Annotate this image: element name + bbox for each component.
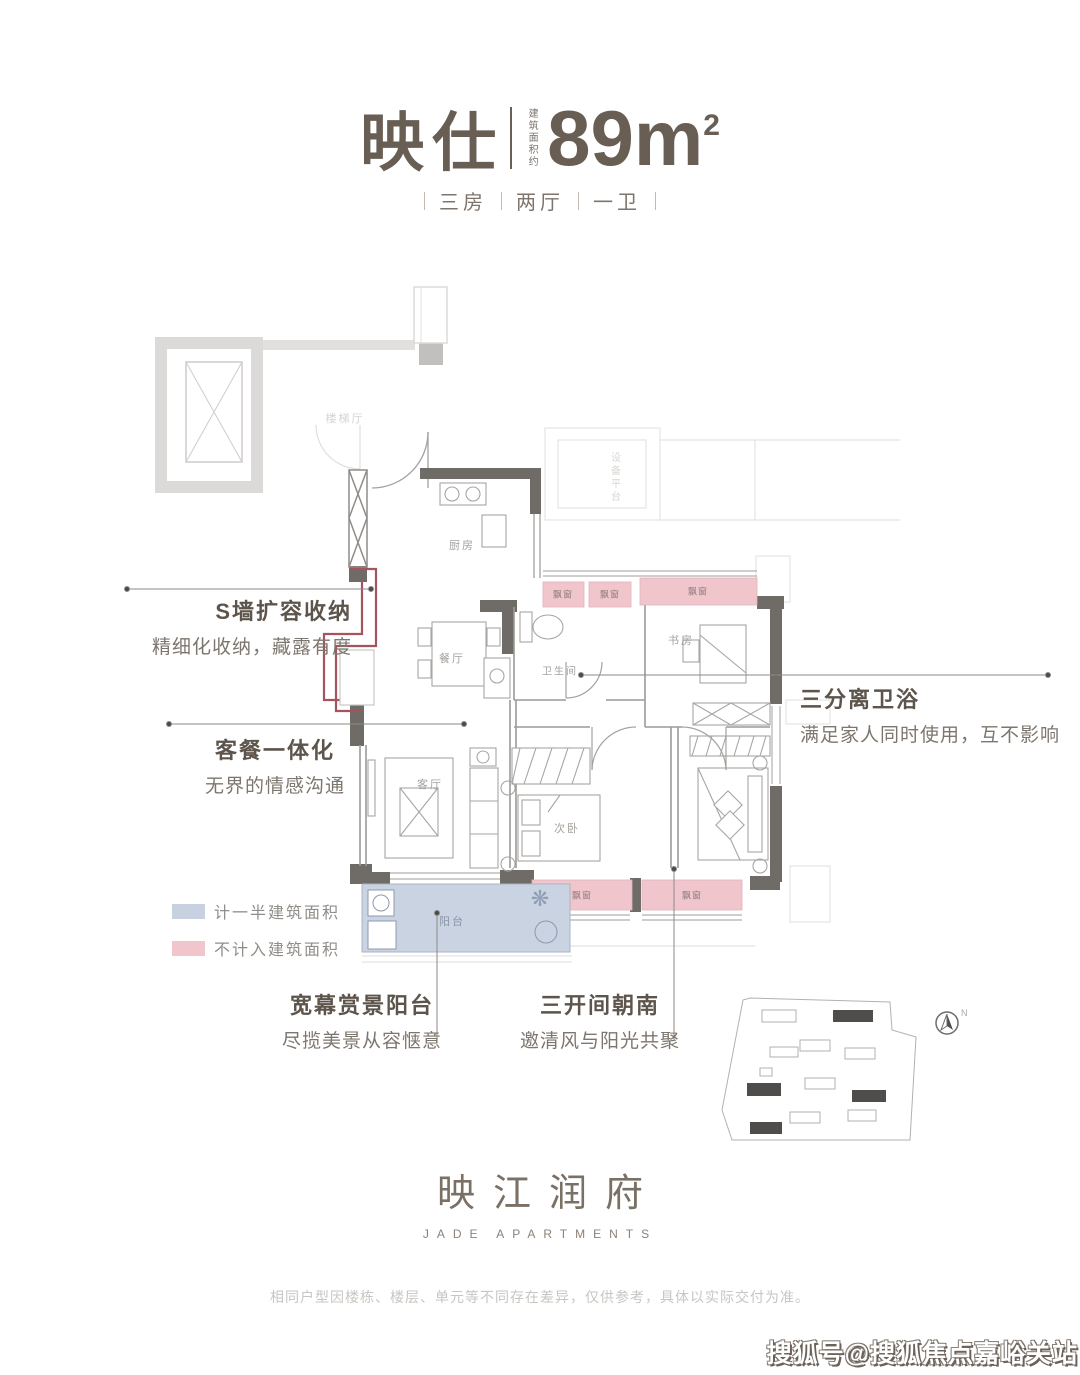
floorplan-poster: 映仕 建筑面积约 89m2 三房 两厅 一卫 xyxy=(0,0,1080,1375)
compass-north-label: N xyxy=(961,1008,968,1018)
annotation-bathroom-title: 三分离卫浴 xyxy=(800,682,1060,714)
legend-item-half-area: 计一半建筑面积 xyxy=(172,899,340,923)
brand-logo: 映江润府 JADE APARTMENTS xyxy=(0,1162,1080,1241)
bay-window-label: 飘窗 xyxy=(688,585,708,598)
room-label-study: 书房 xyxy=(668,632,694,648)
room-label-balcony: 阳台 xyxy=(439,913,465,929)
annotation-bathroom: 三分离卫浴 满足家人同时使用，互不影响 xyxy=(800,682,1060,747)
elevator-core xyxy=(155,287,447,493)
room-label-living: 客厅 xyxy=(417,776,443,792)
furniture xyxy=(368,483,770,873)
annotation-balcony-title: 宽幕赏景阳台 xyxy=(262,988,462,1020)
room-label-dining: 餐厅 xyxy=(439,650,465,666)
brand-logo-cn: 映江润府 xyxy=(0,1162,1080,1217)
balcony-plant-icon: ❋ xyxy=(531,886,549,911)
annotation-storage-title: S墙扩容收纳 xyxy=(152,594,352,626)
annotation-south-rooms-desc: 邀清风与阳光共聚 xyxy=(502,1026,698,1053)
room-label-bath: 卫生间 xyxy=(542,663,578,678)
annotation-storage-desc: 精细化收纳，藏露有度 xyxy=(152,632,352,659)
site-plan-map xyxy=(722,998,916,1140)
annotation-living-dining-desc: 无界的情感沟通 xyxy=(180,771,370,798)
bay-window-label: 飘窗 xyxy=(600,588,620,601)
legend-swatch-excluded-area xyxy=(172,941,205,956)
annotation-living-dining-title: 客餐一体化 xyxy=(180,733,370,765)
annotation-storage: S墙扩容收纳 精细化收纳，藏露有度 xyxy=(152,594,352,659)
compass-north-icon xyxy=(936,1012,958,1034)
legend-label-half-area: 计一半建筑面积 xyxy=(214,899,340,923)
annotation-south-rooms-title: 三开间朝南 xyxy=(502,988,698,1020)
entry-door-arc xyxy=(372,432,428,488)
room-label-equipment-platform: 设备平台 xyxy=(607,452,622,504)
left-shaft-column xyxy=(349,470,367,567)
legend-label-excluded-area: 不计入建筑面积 xyxy=(214,936,340,960)
bay-window-label: 飘窗 xyxy=(682,889,702,902)
legend-item-excluded-area: 不计入建筑面积 xyxy=(172,936,340,960)
legend: 计一半建筑面积 不计入建筑面积 xyxy=(172,899,340,973)
room-label-stair-hall: 楼梯厅 xyxy=(326,410,365,426)
legend-swatch-half-area xyxy=(172,904,205,919)
bay-window-label: 飘窗 xyxy=(553,588,573,601)
annotation-bathroom-desc: 满足家人同时使用，互不影响 xyxy=(800,720,1060,747)
annotation-living-dining: 客餐一体化 无界的情感沟通 xyxy=(180,733,370,798)
bay-window-label: 飘窗 xyxy=(572,889,592,902)
annotation-south-rooms: 三开间朝南 邀清风与阳光共聚 xyxy=(502,988,698,1053)
annotation-balcony: 宽幕赏景阳台 尽揽美景从容惬意 xyxy=(262,988,462,1053)
annotation-balcony-desc: 尽揽美景从容惬意 xyxy=(262,1026,462,1053)
balcony-area: ❋ xyxy=(362,884,570,952)
sohu-watermark: 搜狐号@搜狐焦点嘉峪关站 xyxy=(767,1334,1078,1370)
brand-logo-en: JADE APARTMENTS xyxy=(0,1227,1080,1241)
disclaimer-text: 相同户型因楼栋、楼层、单元等不同存在差异，仅供参考，具体以实际交付为准。 xyxy=(0,1287,1080,1307)
room-label-kitchen: 厨房 xyxy=(449,537,475,553)
room-label-bedroom2: 次卧 xyxy=(554,820,580,836)
